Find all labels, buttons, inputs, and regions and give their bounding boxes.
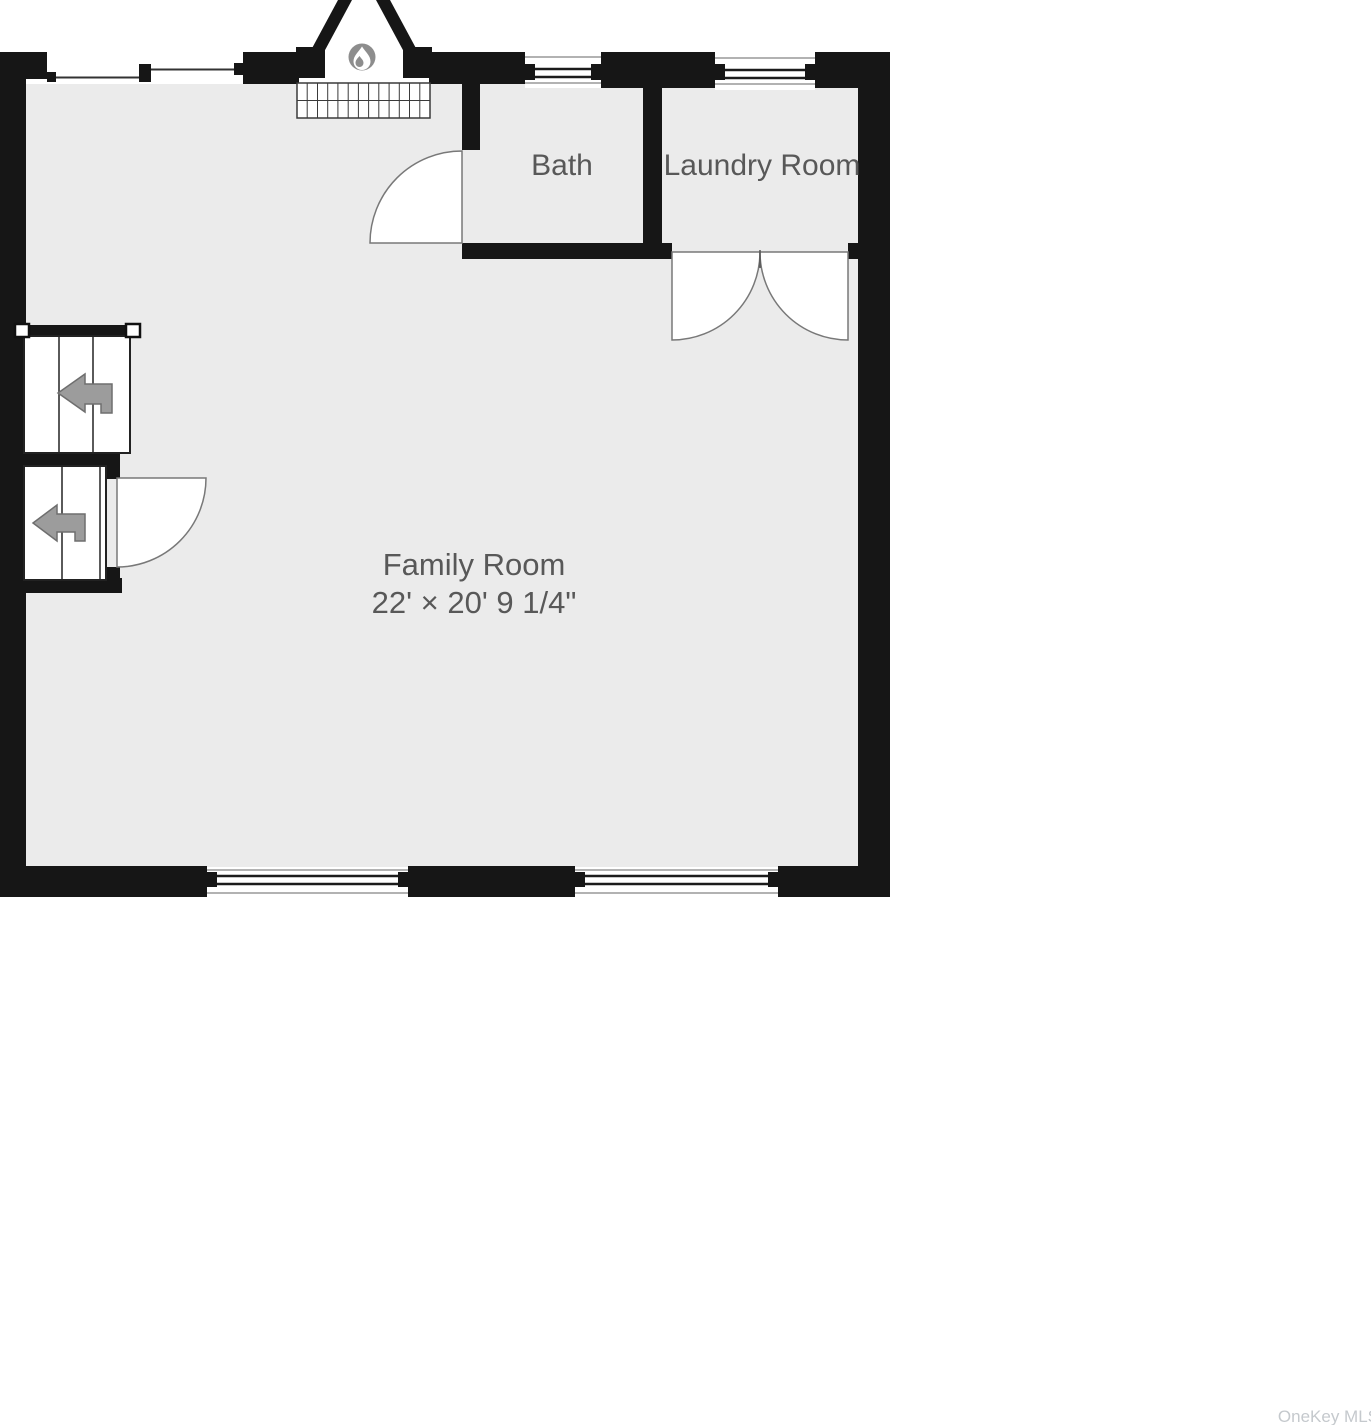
floorplan-canvas: Bath Laundry Room Family Room 22' × 20' … [0, 0, 1371, 1425]
wall-top-seg-2 [429, 52, 525, 84]
stairs-newel-post-right [126, 324, 140, 337]
wall-stair-door-jamb-bottom [105, 567, 120, 578]
wall-bath-laundry-divider [643, 84, 662, 243]
wall-top-right-corner [815, 52, 890, 88]
window-laundry [715, 50, 815, 90]
wall-bath-bottom [462, 243, 672, 259]
fireplace-left-block [296, 47, 325, 78]
wall-stair-landing-bar [15, 325, 140, 336]
wall-laundry-door-stub [848, 243, 858, 259]
floorplan-drawing [0, 0, 1371, 1425]
window-bottom-right [575, 867, 778, 897]
wall-top-left-stub [0, 52, 47, 79]
window-bath [525, 50, 601, 88]
wall-left [0, 75, 26, 897]
window-top-left [47, 63, 245, 82]
fireplace [296, 0, 432, 118]
wall-right [858, 84, 890, 897]
wall-bottom-seg-3 [778, 866, 890, 897]
wall-bath-left [462, 84, 480, 150]
wall-top-seg-3 [601, 52, 715, 88]
watermark: OneKey MLS [1278, 1407, 1371, 1425]
wall-bottom-seg-2 [408, 866, 575, 897]
wall-bottom-seg-1 [0, 866, 207, 897]
fireplace-hearth [297, 83, 430, 118]
fireplace-right-block [403, 47, 432, 78]
wall-top-seg-1 [243, 52, 299, 84]
window-bottom-left [207, 867, 408, 897]
stairs-newel-post-left [15, 324, 29, 337]
